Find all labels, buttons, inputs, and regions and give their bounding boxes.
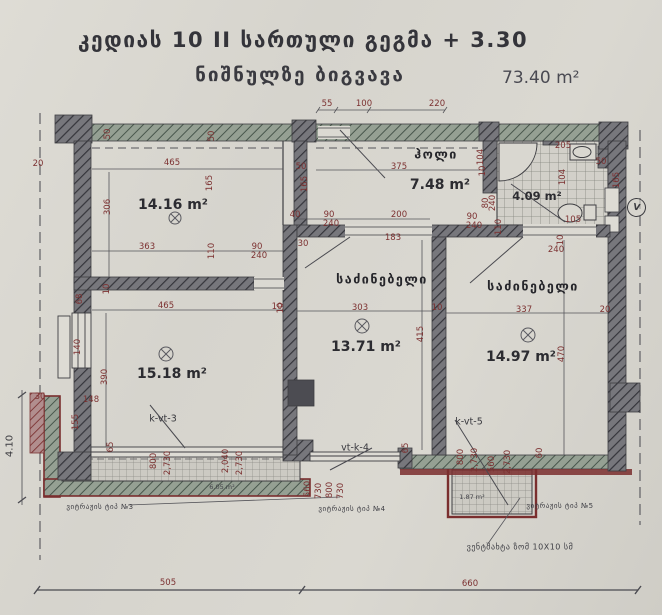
dimension-label: 205 [555, 142, 571, 151]
dimension-label: 110 [495, 219, 504, 235]
dimension-label: 165 [613, 172, 622, 188]
floor-plan-page: კედიას 10 II სართული გეგმა + 3.30 ნიშნულ… [0, 0, 662, 615]
dimension-label: 505 [160, 579, 176, 588]
dimension-label: 50 [596, 158, 607, 167]
dimension-label: 2,040 [222, 449, 231, 473]
dimension-label: 200 [391, 211, 407, 220]
dimension-label: 240 [251, 252, 267, 261]
dimension-label: 148 [83, 396, 99, 405]
dimension-label: 800 [326, 482, 335, 498]
dimension-label: 240 [548, 246, 564, 255]
dimension-label: 220 [429, 100, 445, 109]
dimension-label: 10 [479, 166, 488, 177]
dimension-label: 375 [391, 163, 407, 172]
dimension-label: 65 [107, 442, 116, 453]
dimension-label: 50 [208, 131, 217, 142]
dimension-label: 730 [337, 483, 346, 499]
dimension-label: 303 [352, 304, 368, 313]
dimension-label: 306 [104, 199, 113, 215]
dimension-label: 55 [322, 100, 333, 109]
dimension-label: 560 [304, 481, 313, 497]
dimension-label: 155 [72, 414, 81, 430]
dimension-label: 30 [35, 393, 46, 402]
dimension-label: 2,730 [471, 448, 480, 472]
dimension-labels-layer: 5510022050502046516530636311090240501654… [0, 0, 662, 615]
dimension-label: 140 [74, 339, 83, 355]
dimension-label: 10 [432, 304, 443, 313]
dimension-label: 660 [462, 580, 478, 589]
dimension-label: 800 [150, 453, 159, 469]
dimension-label: 30 [298, 240, 309, 249]
dimension-label: 363 [139, 243, 155, 252]
dimension-label: 465 [158, 302, 174, 311]
dimension-label: 465 [164, 159, 180, 168]
dimension-label: 65 [402, 443, 411, 454]
dimension-label: 68 [76, 294, 85, 305]
dimension-label: 50 [296, 163, 307, 172]
dimension-label: 20 [33, 160, 44, 169]
dimension-label: 60 [536, 448, 545, 459]
dimension-label: 40 [290, 211, 301, 220]
dimension-label: 390 [101, 369, 110, 385]
dimension-label: 730 [315, 483, 324, 499]
dimension-label: 110 [208, 243, 217, 259]
dimension-label: 104 [477, 149, 486, 165]
dimension-label: 2,730 [504, 450, 513, 474]
dimension-label: 183 [385, 234, 401, 243]
dimension-label: 104 [559, 169, 568, 185]
dimension-label: 165 [206, 175, 215, 191]
dimension-label: 10 [103, 284, 112, 295]
dimension-label: 100 [356, 100, 372, 109]
dimension-label: 10 [272, 303, 283, 312]
dimension-label: 20 [600, 306, 611, 315]
dimension-label: 2,730 [164, 451, 173, 475]
dimension-label: 560 [488, 456, 497, 472]
dimension-label: 240 [323, 220, 339, 229]
dimension-label: 470 [558, 346, 567, 362]
dimension-label: 50 [104, 129, 113, 140]
dimension-label: 2,730 [236, 451, 245, 475]
dimension-label: 337 [516, 306, 532, 315]
dimension-label: 800 [457, 449, 466, 465]
dimension-label: 415 [417, 326, 426, 342]
dimension-label: 105 [565, 216, 581, 225]
dimension-label: 165 [301, 176, 310, 192]
dimension-label: 240 [489, 195, 498, 211]
dimension-label: 240 [466, 222, 482, 231]
